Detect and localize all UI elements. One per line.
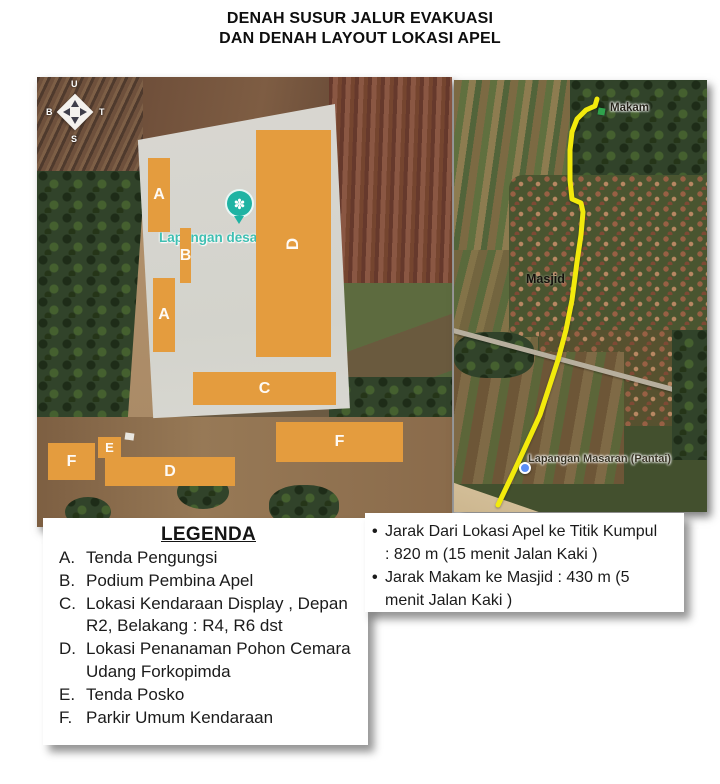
bullet-icon: • <box>372 520 385 566</box>
legend-text: Parkir Umum Kendaraan <box>86 707 358 730</box>
legend-text: Lokasi Penanaman Pohon Cemara Udang Fork… <box>86 638 358 684</box>
zone-label: A <box>158 306 170 324</box>
evacuation-route <box>454 80 707 512</box>
legend-box: LEGENDA A. Tenda Pengungsi B. Podium Pem… <box>43 518 368 745</box>
makam-marker-icon <box>597 107 605 115</box>
legend-item-b: B. Podium Pembina Apel <box>59 570 358 593</box>
zone-f-1: F <box>48 443 95 480</box>
zone-label: F <box>335 433 345 451</box>
zone-b: B <box>180 228 191 283</box>
legend-item-f: F. Parkir Umum Kendaraan <box>59 707 358 730</box>
compass-rose-icon: U S B T <box>40 77 110 147</box>
bullet-icon: • <box>372 566 385 612</box>
legend-letter: A. <box>59 547 86 570</box>
zone-c: C <box>193 372 336 405</box>
legend-text: Tenda Posko <box>86 684 358 707</box>
label-lapangan-masaran: Lapangan Masaran (Pantai) <box>528 453 671 465</box>
compass-arrow-east <box>80 108 87 116</box>
zone-label: B <box>180 247 192 265</box>
zone-f-2: F <box>276 422 403 462</box>
park-pin-icon: ✽ <box>225 189 253 225</box>
legend-item-a: A. Tenda Pengungsi <box>59 547 358 570</box>
zone-label: F <box>67 453 77 471</box>
legend-heading: LEGENDA <box>59 523 358 546</box>
compass-letter-south: S <box>71 134 77 144</box>
legend-text: Podium Pembina Apel <box>86 570 358 593</box>
note-item-2: • Jarak Makam ke Masjid : 430 m (5 menit… <box>372 566 678 612</box>
flower-glyph: ✽ <box>225 189 254 218</box>
zone-label: E <box>105 440 114 455</box>
legend-letter: C. <box>59 593 86 639</box>
zone-d-display: D <box>256 130 331 357</box>
page: DENAH SUSUR JALUR EVAKUASI DAN DENAH LAY… <box>0 0 720 784</box>
zone-a-2: A <box>153 278 175 352</box>
compass-letter-east: T <box>99 107 105 117</box>
compass-arrow-south <box>71 117 79 124</box>
evacuation-route-line <box>498 99 597 505</box>
compass-letter-north: U <box>71 79 78 89</box>
legend-text: Tenda Pengungsi <box>86 547 358 570</box>
legend-item-e: E. Tenda Posko <box>59 684 358 707</box>
zone-label: A <box>153 186 165 204</box>
label-masjid: Masjid <box>526 272 565 286</box>
legend-item-c: C. Lokasi Kendaraan Display , Depan R2, … <box>59 593 358 639</box>
note-item-1: • Jarak Dari Lokasi Apel ke Titik Kumpul… <box>372 520 678 566</box>
field-label: Lapangan desa <box>159 230 257 245</box>
legend-text: Lokasi Kendaraan Display , Depan R2, Bel… <box>86 593 358 639</box>
legend-letter: F. <box>59 707 86 730</box>
zone-label: D <box>284 237 304 249</box>
building-shed <box>125 432 135 440</box>
legend-letter: D. <box>59 638 86 684</box>
distance-notes-box: • Jarak Dari Lokasi Apel ke Titik Kumpul… <box>365 513 684 612</box>
title-line-2: DAN DENAH LAYOUT LOKASI APEL <box>0 29 720 49</box>
note-text: Jarak Makam ke Masjid : 430 m (5 menit J… <box>385 566 678 612</box>
page-title: DENAH SUSUR JALUR EVAKUASI DAN DENAH LAY… <box>0 9 720 49</box>
title-line-1: DENAH SUSUR JALUR EVAKUASI <box>0 9 720 29</box>
zone-e: E <box>98 437 121 458</box>
compass-arrow-west <box>63 108 70 116</box>
zone-a-1: A <box>148 158 170 232</box>
map-apel-layout: Lapangan desa ✽ U S B T A B A D C <box>37 77 452 527</box>
legend-letter: E. <box>59 684 86 707</box>
terrain-red-field <box>329 77 452 289</box>
pin-pointer <box>234 216 244 224</box>
zone-d-2: D <box>105 457 235 486</box>
compass-arrow-north <box>71 100 79 107</box>
zone-label: C <box>259 380 271 398</box>
label-makam: Makam <box>610 102 649 114</box>
legend-item-d: D. Lokasi Penanaman Pohon Cemara Udang F… <box>59 638 358 684</box>
note-text: Jarak Dari Lokasi Apel ke Titik Kumpul :… <box>385 520 678 566</box>
legend-letter: B. <box>59 570 86 593</box>
zone-label: D <box>164 463 176 481</box>
compass-letter-west: B <box>46 107 53 117</box>
map-evacuation-route: Makam Masjid Lapangan Masaran (Pantai) <box>454 80 707 512</box>
